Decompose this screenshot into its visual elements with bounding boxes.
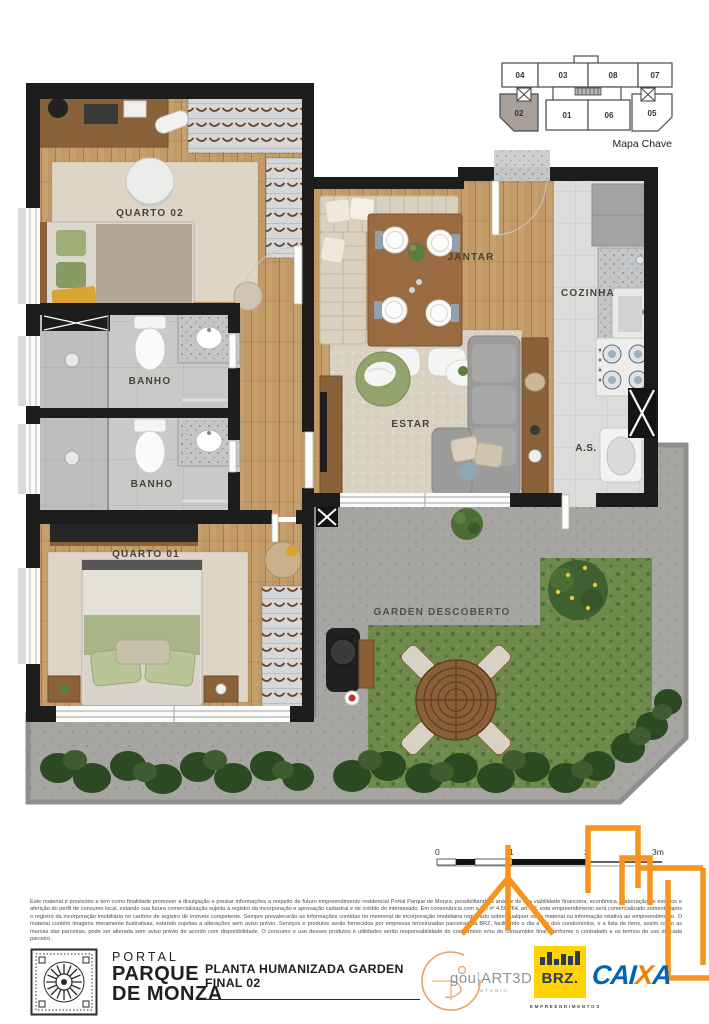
key-map: 04 03 08 07 02 01 06 05 Mapa Chave	[500, 56, 672, 150]
scale-tick-2: 2	[584, 847, 589, 857]
gouart3d-gou: gou	[450, 970, 477, 987]
key-map-title: Mapa Chave	[612, 138, 672, 150]
gouart3d-logo: gou|ART3D STUDIO	[418, 946, 528, 1018]
terrace-plant	[451, 508, 483, 540]
key-map-unit-01: 01	[563, 111, 572, 120]
label-as: A.S.	[575, 443, 596, 454]
scale-tick-3m: 3m	[652, 847, 664, 857]
key-map-unit-04: 04	[516, 71, 525, 80]
label-banho-2: BANHO	[131, 479, 174, 490]
flower-bush	[548, 560, 608, 620]
label-jantar: JANTAR	[447, 252, 494, 263]
gouart3d-wordmark: gou|ART3D	[450, 970, 532, 987]
gouart3d-art3d: ART3D	[481, 970, 532, 987]
legal-disclaimer: Este material é provisório e tem como fi…	[30, 899, 682, 944]
window-quarto-01-south	[56, 706, 290, 722]
portal-monza-logo-icon	[30, 948, 98, 1016]
key-map-unit-03: 03	[559, 71, 568, 80]
label-quarto-01: QUARTO 01	[112, 549, 180, 560]
caixa-x-icon: X	[634, 960, 653, 990]
footer: PORTAL PARQUE DE MONZA PLANTA HUMANIZADA…	[0, 944, 709, 1022]
label-estar: ESTAR	[391, 419, 430, 430]
key-map-unit-07: 07	[651, 71, 660, 80]
gouart3d-studio-label: STUDIO	[480, 988, 509, 993]
caixa-a: A	[652, 960, 673, 990]
brz-yellow-box-icon: BRZ.	[534, 946, 586, 998]
plan-title: PLANTA HUMANIZADA GARDEN FINAL 02	[205, 962, 420, 1000]
key-map-unit-05: 05	[648, 109, 657, 118]
scale-tick-0: 0	[435, 847, 440, 857]
brz-logo: BRZ. EMPREENDIMENTOS	[530, 946, 590, 1009]
floor-plan-poster: QUARTO 02 BANHO BANHO QUARTO 01 JANTAR C…	[0, 0, 709, 1024]
key-map-unit-08: 08	[609, 71, 618, 80]
caixa-logo: CAIXA	[591, 960, 672, 991]
sliding-door-estar	[340, 493, 510, 507]
key-map-unit-06: 06	[605, 111, 614, 120]
brz-empreendimentos-label: EMPREENDIMENTOS	[530, 1004, 590, 1009]
label-garden: GARDEN DESCOBERTO	[374, 607, 511, 618]
label-quarto-02: QUARTO 02	[116, 208, 184, 219]
key-map-unit-02: 02	[515, 109, 524, 118]
brz-skyline-icon	[540, 951, 580, 965]
caixa-cai: CAI	[591, 960, 637, 990]
garden-table-set	[399, 643, 513, 757]
label-cozinha: COZINHA	[561, 288, 615, 299]
floor-plan: QUARTO 02 BANHO BANHO QUARTO 01 JANTAR C…	[0, 0, 709, 1024]
label-banho-1: BANHO	[129, 376, 172, 387]
window	[18, 208, 40, 664]
scale-tick-1: 1	[509, 847, 514, 857]
scale-bar: 0 1 2 3m	[435, 847, 664, 866]
key-map-core-hatch	[575, 88, 601, 95]
brz-wordmark: BRZ.	[534, 970, 586, 987]
